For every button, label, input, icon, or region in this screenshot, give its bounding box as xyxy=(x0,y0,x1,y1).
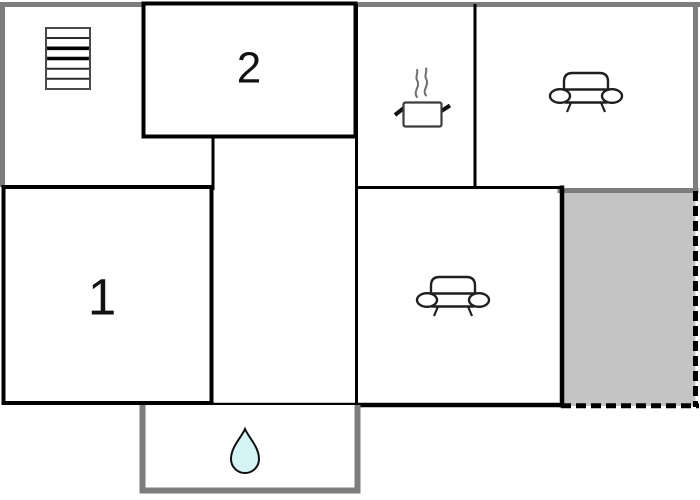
bathroom xyxy=(143,405,358,491)
terrace xyxy=(558,186,700,408)
room-label-2: 2 xyxy=(237,44,261,93)
pot-body xyxy=(404,103,442,127)
floor-plan-svg: 2 1 xyxy=(0,0,700,500)
terrace-area xyxy=(562,188,696,406)
stairs-icon xyxy=(46,28,90,89)
room-label-1: 1 xyxy=(88,269,116,326)
floor-plan: 2 1 xyxy=(0,0,700,500)
